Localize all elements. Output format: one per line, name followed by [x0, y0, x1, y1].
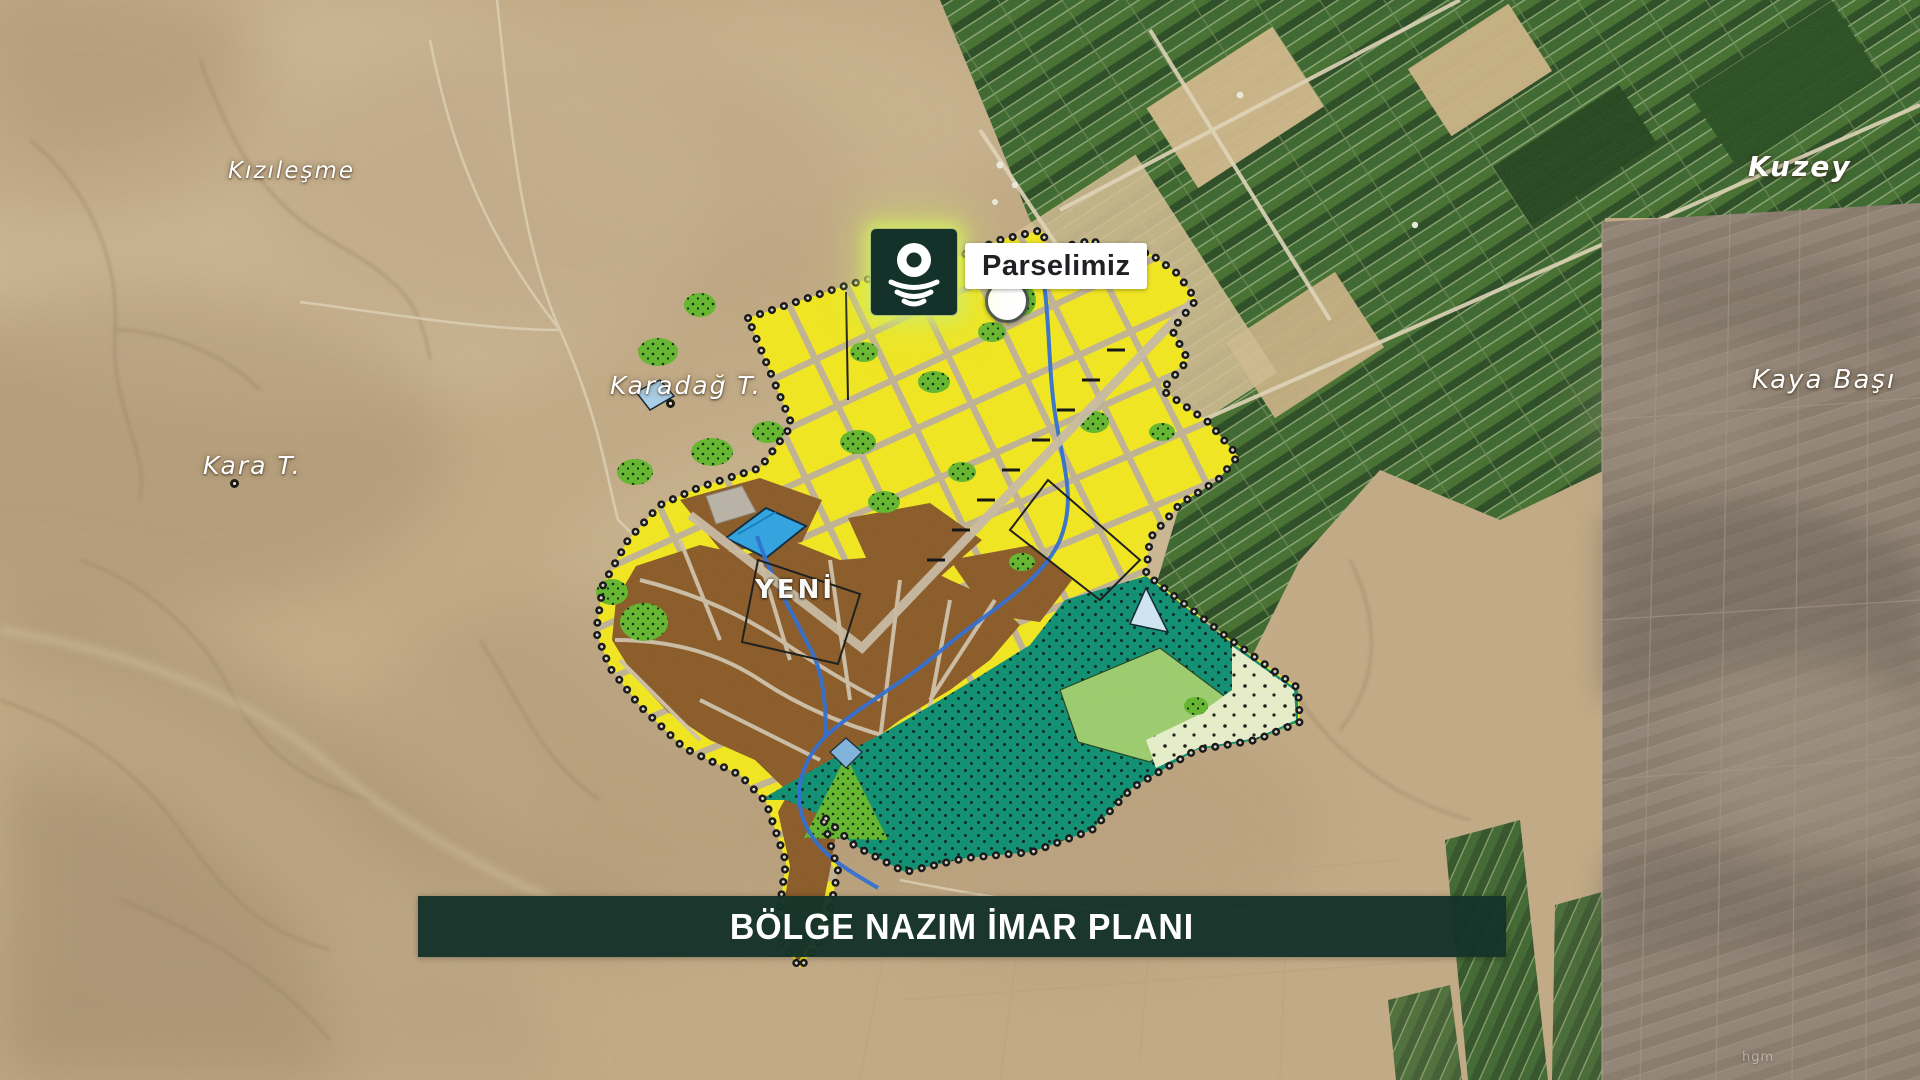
- plan-title-banner: BÖLGE NAZIM İMAR PLANI: [418, 896, 1506, 957]
- kara-hill-marker: [230, 479, 239, 488]
- field-location-pin-icon: [870, 228, 958, 316]
- pin-glyph: [871, 229, 957, 315]
- plan-title-text: BÖLGE NAZIM İMAR PLANI: [730, 906, 1194, 948]
- parcel-callout-text: Parselimiz: [982, 250, 1130, 283]
- karadag-hill-marker: [666, 399, 675, 408]
- satellite-map-scene: Kızıleşme Karadağ T. Kara T. Kuzey Kaya …: [0, 0, 1920, 1080]
- parcel-callout: Parselimiz: [870, 228, 1147, 316]
- parcel-callout-label: Parselimiz: [965, 243, 1147, 289]
